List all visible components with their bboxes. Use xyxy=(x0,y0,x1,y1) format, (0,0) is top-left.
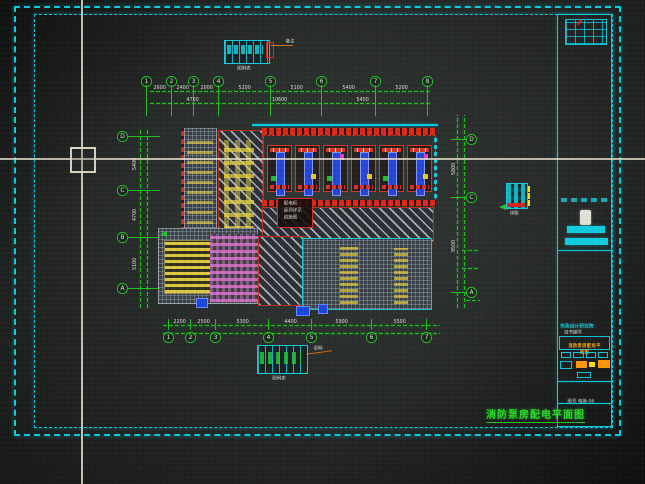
grid-tick xyxy=(146,85,147,116)
stub-dim xyxy=(466,300,480,301)
cable-tray-area xyxy=(164,240,212,294)
plan-top-wall xyxy=(252,124,438,126)
crosshair-horizontal xyxy=(0,158,645,160)
grid-bubble: 1 xyxy=(163,332,174,343)
grid-line xyxy=(140,128,141,308)
detail-red-band xyxy=(507,203,525,207)
wall-hatch-lower xyxy=(258,236,306,306)
grid-tick xyxy=(215,319,216,330)
badge-yellow xyxy=(589,362,595,367)
legend-bottom-label: 图例表 xyxy=(272,376,286,381)
detail-arrow-icon xyxy=(499,204,506,210)
grid-tick xyxy=(268,319,269,330)
stub-dim xyxy=(462,268,478,269)
room-reservoir xyxy=(302,238,432,310)
switchgear-bay xyxy=(323,145,348,192)
switchgear-row xyxy=(262,135,436,201)
detail-yellow-tick xyxy=(528,186,530,206)
small-center-cell xyxy=(577,372,591,378)
reservoir-yellow-strip-1 xyxy=(340,246,358,304)
dimension-text: 2600 xyxy=(153,86,165,91)
title-block-divider-1 xyxy=(557,250,612,251)
badge-cell-left xyxy=(560,361,572,369)
dimension-text: 4700 xyxy=(133,208,138,220)
title-block-divider-3 xyxy=(557,403,612,404)
grid-line xyxy=(147,128,148,308)
grid-bubble: 6 xyxy=(366,332,377,343)
scale-cells-row xyxy=(561,352,608,358)
grid-tick xyxy=(375,85,376,116)
grid-bubble: 2 xyxy=(185,332,196,343)
equipment-top-band xyxy=(262,128,436,135)
crosshair-pickbox xyxy=(70,147,96,173)
grid-tick xyxy=(127,136,160,137)
legend-table-bottom xyxy=(257,345,308,374)
grid-bubble: C xyxy=(466,192,477,203)
grid-bubble: D xyxy=(466,134,477,145)
switchgear-bay xyxy=(267,145,292,192)
cable-note-box: 配电柜 留洞详见 结施图 xyxy=(277,198,313,228)
dimension-text: 5400 xyxy=(343,86,355,91)
legend-cells xyxy=(260,352,301,364)
dimension-text: 5200 xyxy=(239,86,251,91)
door-symbol xyxy=(196,298,208,308)
cert-number-text: 证书编号 xyxy=(564,330,582,335)
dimension-text: 5100 xyxy=(133,257,138,269)
legend-top-label: 图例表 xyxy=(237,66,251,71)
dimension-text: 5800 xyxy=(452,163,457,175)
dimension-text: 2000 xyxy=(200,86,212,91)
door-symbol xyxy=(318,304,328,314)
firm-name-text: 市政设计研究院 xyxy=(560,322,594,329)
grid-tick xyxy=(371,319,372,330)
grid-tick xyxy=(218,85,219,116)
grid-tick xyxy=(451,292,466,293)
switchgear-bay xyxy=(351,145,376,192)
grid-tick xyxy=(127,288,160,289)
grid-line xyxy=(163,333,440,334)
grid-tick xyxy=(127,190,160,191)
switchgear-bay xyxy=(407,145,432,192)
dimension-text: 5500 xyxy=(393,320,405,325)
note-line: 配电柜 xyxy=(284,201,307,206)
stage-stamp-row xyxy=(561,198,607,202)
grid-bubble: 3 xyxy=(210,332,221,343)
hatch-left-symbols xyxy=(224,140,254,230)
crosshair-vertical xyxy=(81,0,83,484)
firm-name-bar xyxy=(567,226,605,233)
grid-tick xyxy=(127,237,160,238)
legend-cells xyxy=(227,45,263,54)
grid-bubble: 7 xyxy=(421,332,432,343)
dimension-text: 5300 xyxy=(236,320,248,325)
corridor-yellow-fittings xyxy=(187,134,213,234)
dimension-text: 5400 xyxy=(357,98,369,103)
dimension-text: 5400 xyxy=(133,158,138,170)
badge-orange-2 xyxy=(598,360,610,368)
dimension-text: 4400 xyxy=(284,320,296,325)
grid-tick xyxy=(451,197,466,198)
grid-bubble: 5 xyxy=(306,332,317,343)
grid-tick xyxy=(451,139,466,140)
dimension-text: 4700 xyxy=(187,98,199,103)
drawing-title-underline xyxy=(486,422,582,423)
annotation-strip xyxy=(210,234,258,302)
dimension-text: 9500 xyxy=(452,239,457,251)
legend-table-top xyxy=(224,40,270,64)
grid-tick xyxy=(426,319,427,330)
entry-arrow-icon xyxy=(160,231,167,237)
grid-line xyxy=(163,325,440,326)
dimension-text: 2500 xyxy=(197,320,209,325)
reservoir-yellow-strip-2 xyxy=(394,248,408,304)
dimension-text: 2400 xyxy=(177,86,189,91)
drawing-title: 消防泵房配电平面图 xyxy=(486,406,585,423)
grid-tick xyxy=(270,85,271,116)
stub-dim xyxy=(462,250,478,251)
dimension-text: 5200 xyxy=(396,86,408,91)
door-symbol xyxy=(296,306,310,316)
cad-viewport[interactable]: 市政设计研究院 证书编号 消防泵房配电平面图 图号 电施-06 配电柜 留洞详见… xyxy=(0,0,645,484)
seal-stamp xyxy=(580,210,591,225)
grid-line xyxy=(457,115,458,308)
grid-tick xyxy=(168,319,169,330)
grid-line xyxy=(464,115,465,308)
grid-tick xyxy=(321,85,322,116)
grid-tick xyxy=(311,319,312,330)
legend-top-leader xyxy=(271,45,293,46)
firm-cert-bar xyxy=(565,238,608,245)
badge-orange-1 xyxy=(576,361,587,368)
switchgear-bay xyxy=(379,145,404,192)
title-block-divider-2 xyxy=(557,381,612,382)
legend-bottom-note: 说明 xyxy=(314,346,323,351)
grid-bubble: A xyxy=(466,287,477,298)
dimension-text: 2200 xyxy=(174,320,186,325)
note-line: 结施图 xyxy=(284,215,307,220)
plan-right-wall xyxy=(434,136,437,198)
legend-top-note: 备注 xyxy=(286,39,295,44)
grid-tick xyxy=(190,319,191,330)
detail-label: 详图 xyxy=(510,211,519,216)
grid-bubble: 4 xyxy=(263,332,274,343)
grid-tick xyxy=(171,85,172,116)
switchgear-bay xyxy=(295,145,320,192)
dimension-text: 5100 xyxy=(290,86,302,91)
dimension-text: 10600 xyxy=(272,98,287,103)
note-line: 留洞详见 xyxy=(284,208,307,213)
dimension-text: 5900 xyxy=(336,320,348,325)
grid-tick xyxy=(427,85,428,116)
